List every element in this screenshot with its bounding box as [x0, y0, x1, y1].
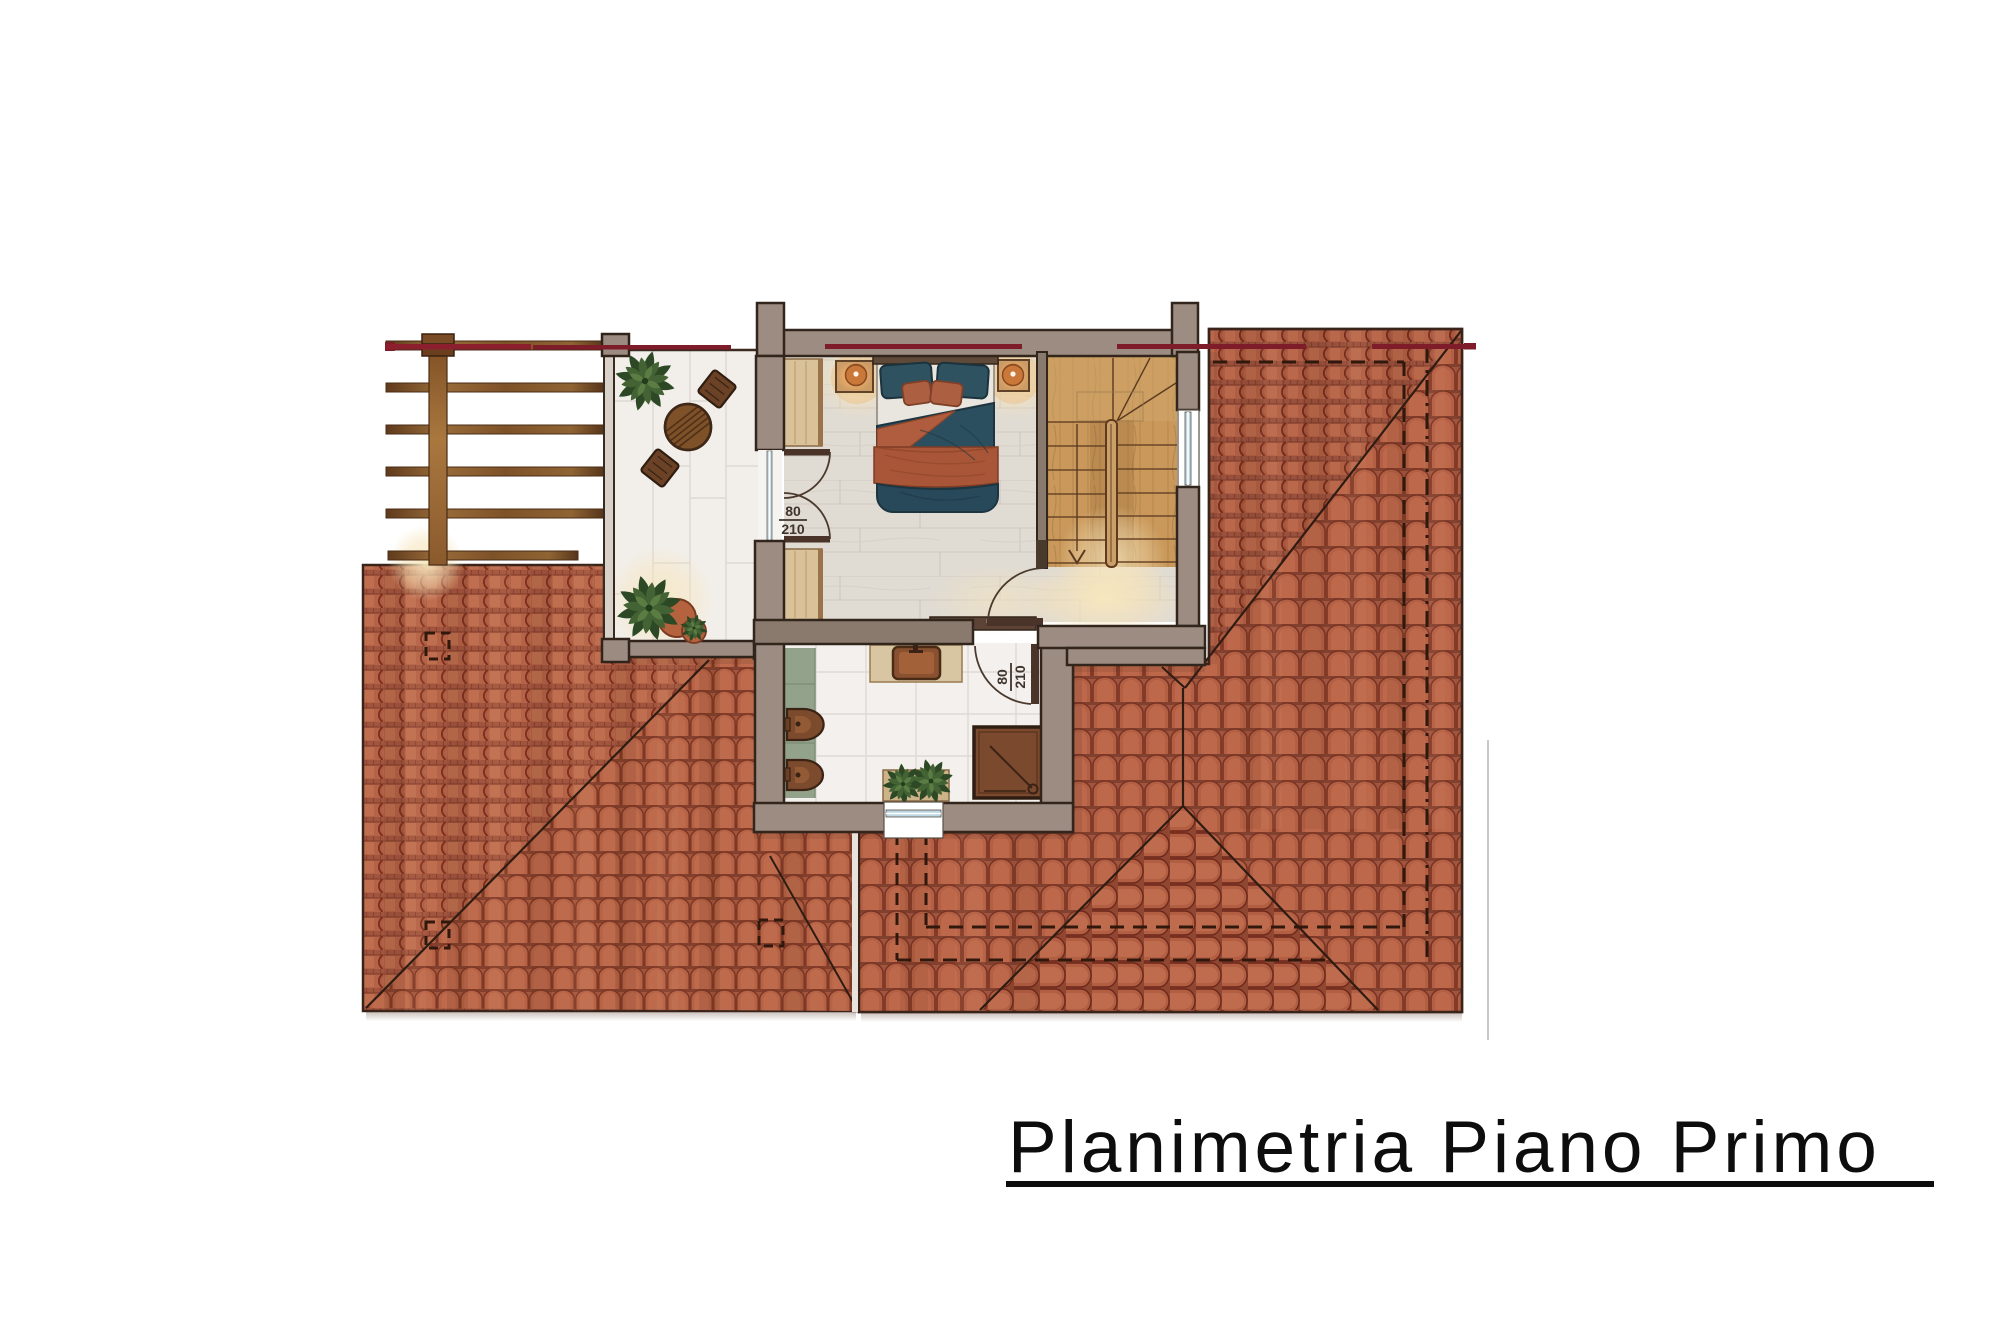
svg-text:Planimetria Piano Primo: Planimetria Piano Primo [1008, 1107, 1881, 1188]
svg-text:80: 80 [994, 669, 1010, 685]
svg-text:210: 210 [781, 521, 805, 537]
svg-text:80: 80 [785, 503, 801, 519]
svg-text:210: 210 [1012, 665, 1028, 689]
